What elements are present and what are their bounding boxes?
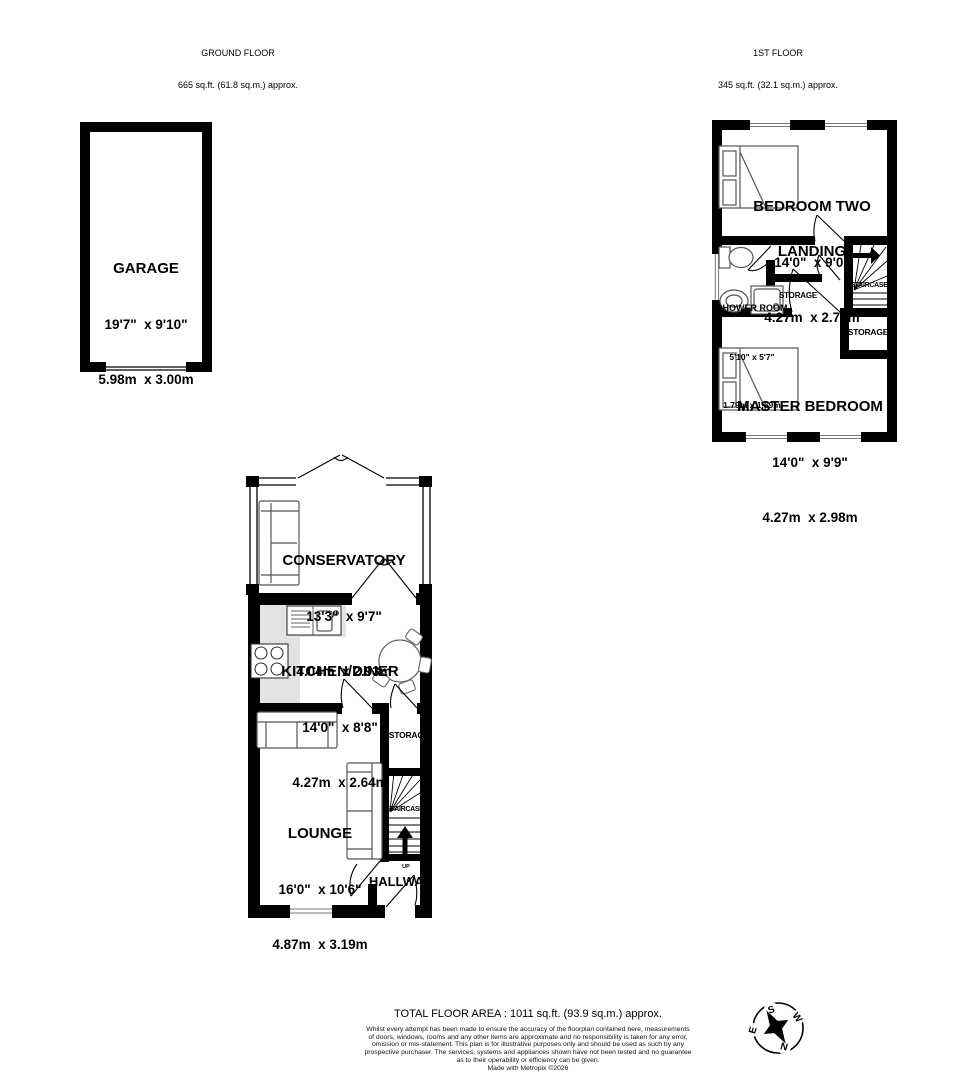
storage-ground-label: STORAGE bbox=[389, 730, 429, 740]
master-bedroom-label: MASTER BEDROOM 14'0" x 9'9" 4.27m x 2.98… bbox=[737, 360, 883, 565]
hallway-label: HALLWAY bbox=[369, 874, 431, 890]
garage-label: GARAGE 19'7" x 9'10" 5.98m x 3.00m bbox=[98, 222, 193, 427]
ground-floor-header: GROUND FLOOR 665 sq.ft. (61.8 sq.m.) app… bbox=[178, 27, 298, 111]
up-label: UP bbox=[402, 864, 410, 871]
storage-first-right-label: STORAGE bbox=[848, 327, 888, 337]
conservatory-french-doors bbox=[298, 455, 384, 478]
ground-floor-stairs-arrow bbox=[397, 826, 413, 856]
first-floor-area: 345 sq.ft. (32.1 sq.m.) approx. bbox=[718, 80, 838, 91]
first-floor-title: 1ST FLOOR bbox=[718, 48, 838, 59]
staircase-ground-label: STAIRCASE bbox=[386, 806, 423, 814]
storage-first-mid-label: STORAGE bbox=[779, 291, 817, 301]
first-floor-header: 1ST FLOOR 345 sq.ft. (32.1 sq.m.) approx… bbox=[718, 27, 838, 111]
disclaimer-text: Whilst every attempt has been made to en… bbox=[364, 1026, 691, 1072]
total-floor-area: TOTAL FLOOR AREA : 1011 sq.ft. (93.9 sq.… bbox=[394, 1008, 662, 1021]
compass-rose: S W N E bbox=[745, 1002, 805, 1054]
floorplan-page: S W N E GROUND FLOOR 665 sq.ft. (61.8 sq… bbox=[0, 0, 977, 1080]
ground-floor-area: 665 sq.ft. (61.8 sq.m.) approx. bbox=[178, 80, 298, 91]
lounge-label: LOUNGE 16'0" x 10'6" 4.87m x 3.19m bbox=[272, 787, 367, 992]
landing-label: LANDING bbox=[778, 243, 846, 260]
ground-floor-title: GROUND FLOOR bbox=[178, 48, 298, 59]
staircase-first-label: STAIRCASE bbox=[850, 282, 887, 290]
